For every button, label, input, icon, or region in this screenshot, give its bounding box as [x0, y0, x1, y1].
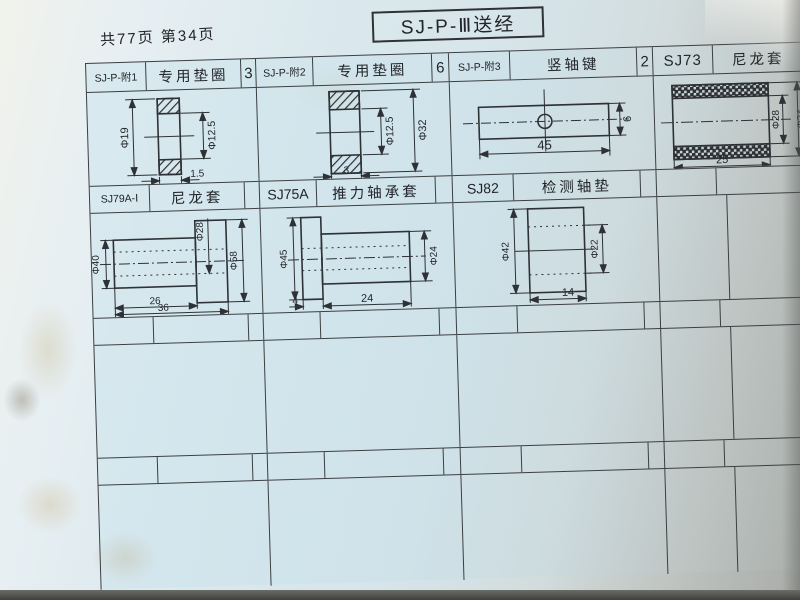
dimension-label: Φ28 — [771, 109, 783, 129]
part-name-cell: 专用垫圈 — [146, 59, 242, 90]
special-washer-1-drawing: Φ19 Φ12.5 1.5 — [87, 88, 260, 186]
quantity-cell — [249, 314, 265, 340]
empty-drawing-cell — [264, 335, 460, 453]
quantity-cell: 2 — [637, 47, 654, 75]
empty-drawing-cell — [665, 465, 800, 574]
page-count-label: 共77页 第34页 — [100, 23, 216, 50]
quantity-cell — [649, 442, 666, 468]
drawing-cell: Φ12.5 Φ32 3 — [257, 82, 453, 181]
dimension-label: Φ32 — [417, 119, 430, 140]
cell-divider — [661, 327, 734, 441]
empty-drawing-cell — [661, 325, 800, 441]
quantity-cell — [444, 448, 462, 474]
scanned-manual-page: { "page": { "title": "SJ-P-Ⅲ送经", "page_i… — [0, 0, 800, 600]
part-name-cell: 专用垫圈 — [313, 54, 433, 86]
drawings-row-3 — [94, 325, 800, 458]
dimension-label: Φ12.5 — [206, 121, 219, 150]
drawing-cell: Φ19 Φ12.5 1.5 — [87, 88, 260, 186]
drawings-row-4 — [99, 465, 800, 590]
dimension-label: 36 — [158, 303, 170, 314]
section-title: SJ-P-Ⅲ送经 — [400, 9, 515, 40]
dimension-label: Φ45 — [279, 249, 291, 269]
part-name-cell — [320, 309, 440, 339]
dimension-label: Φ42 — [500, 241, 512, 261]
part-name-cell — [325, 449, 445, 479]
part-number-cell: SJ82 — [453, 174, 515, 202]
empty-drawing-cell — [461, 469, 668, 580]
quantity-cell — [439, 308, 457, 334]
quantity-cell — [245, 182, 261, 208]
nylon-sleeve-sj79a-drawing: Φ40 Φ28 Φ58 — [90, 209, 263, 318]
detection-shaft-washer-drawing: Φ42 Φ22 14 — [453, 197, 660, 307]
drawing-cell: Φ42 Φ22 14 — [453, 197, 660, 307]
dimension-bore-dia: Φ28 — [195, 218, 213, 273]
part-number-cell: SJ79A-Ⅰ — [90, 185, 151, 213]
nylon-sleeve-sj73-drawing: 25 Φ28 Φ34 — [654, 72, 800, 169]
dimension-label: 6 — [622, 116, 634, 122]
quantity-cell: 6 — [432, 53, 450, 81]
dimension-label: 1.5 — [190, 169, 205, 180]
cell-divider — [665, 467, 738, 574]
quantity-cell — [253, 454, 269, 480]
dimension-label: Φ12.5 — [384, 116, 397, 145]
dimension-label: 24 — [361, 293, 374, 305]
part-outline — [315, 90, 375, 174]
parts-table: SJ-P-附1 专用垫圈 3 SJ-P-附2 专用垫圈 6 SJ-P-附3 竖轴… — [85, 42, 800, 590]
vertical-shaft-key-drawing: 45 6 — [450, 76, 657, 175]
dimension-label: Φ24 — [429, 246, 441, 266]
part-number-cell: SJ-P-附3 — [449, 51, 511, 81]
thrust-bearing-sleeve-drawing: Φ45 Φ24 4 — [260, 203, 456, 313]
empty-drawing-cell — [99, 481, 272, 590]
drawings-row-2: Φ40 Φ28 Φ58 — [90, 193, 800, 318]
dimension-flange-dia: Φ45 — [278, 218, 303, 301]
cell-divider — [657, 195, 730, 301]
part-number-cell — [461, 446, 523, 474]
part-number-cell: SJ-P-附2 — [256, 57, 314, 87]
part-name-cell: 竖轴键 — [510, 48, 638, 80]
part-name-cell: 检测轴垫 — [513, 171, 641, 201]
part-number-cell — [456, 306, 518, 334]
part-name-cell — [517, 303, 645, 333]
part-name-cell — [522, 442, 650, 472]
quantity-cell — [644, 302, 661, 328]
dimension-label: Φ28 — [195, 222, 207, 242]
part-number-cell — [656, 168, 717, 196]
dimension-flange-dia: Φ58 — [226, 219, 250, 302]
special-washer-2-drawing: Φ12.5 Φ32 3 — [257, 82, 453, 181]
part-number-cell — [264, 312, 322, 340]
empty-drawing-cell — [94, 341, 267, 458]
dimension-label: 25 — [716, 154, 729, 166]
part-number-cell — [94, 317, 155, 345]
dimension-label: 4 — [292, 296, 298, 307]
scanned-page: 共77页 第34页 SJ-P-Ⅲ送经 SJ-P-附1 专用垫圈 3 SJ-P-附… — [0, 0, 800, 590]
empty-drawing-cell — [457, 329, 664, 447]
dimension-label: Φ40 — [91, 255, 103, 275]
quantity-cell — [436, 176, 454, 202]
part-number-cell: SJ75A — [260, 180, 318, 208]
part-outline — [99, 219, 245, 305]
part-outline — [287, 214, 427, 300]
page-right-edge-shadow — [782, 0, 800, 590]
drawing-cell: 25 Φ28 Φ34 — [654, 72, 800, 169]
part-number-cell — [98, 457, 159, 485]
dimension-body-length: 24 — [325, 281, 412, 309]
empty-drawing-cell — [268, 475, 464, 586]
dimension-label: 3 — [343, 165, 349, 176]
quantity-cell — [640, 170, 657, 196]
part-outline — [514, 207, 596, 293]
dimension-flange-width: 4 — [289, 295, 331, 310]
part-name-cell — [158, 454, 254, 483]
part-outline — [143, 98, 195, 175]
part-name-cell: 尼龙套 — [150, 182, 246, 211]
part-number-cell: SJ-P-附1 — [86, 62, 147, 92]
dimension-width: 14 — [530, 286, 586, 303]
dimension-label: 14 — [562, 287, 575, 299]
part-number-cell — [664, 440, 725, 468]
drawing-cell: Φ40 Φ28 Φ58 — [90, 209, 263, 318]
drawing-cell: Φ45 Φ24 4 — [260, 203, 456, 313]
quantity-cell: 3 — [241, 59, 257, 87]
part-number-cell — [660, 300, 721, 328]
part-number-cell — [268, 452, 326, 480]
part-name-cell: 推力轴承套 — [317, 177, 437, 207]
part-name-cell — [154, 314, 250, 343]
dimension-body-dia: Φ24 — [409, 231, 440, 282]
scan-bottom-edge — [0, 590, 800, 600]
dimension-label: 45 — [537, 137, 552, 152]
dimension-label: Φ19 — [119, 127, 132, 148]
dimension-label: Φ22 — [589, 239, 601, 259]
section-title-box: SJ-P-Ⅲ送经 — [372, 6, 545, 42]
dimension-label: Φ58 — [229, 251, 241, 271]
empty-drawing-cell — [657, 193, 800, 301]
drawing-cell: 45 6 — [450, 76, 657, 175]
